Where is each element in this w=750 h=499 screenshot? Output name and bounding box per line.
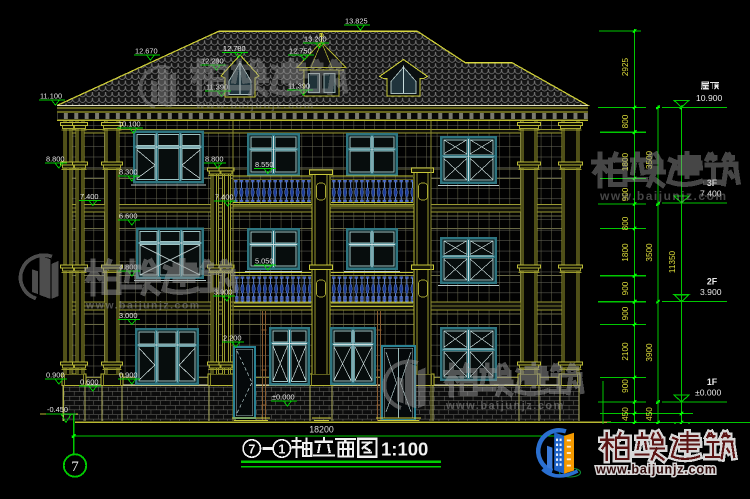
svg-text:7.400: 7.400 <box>80 192 99 201</box>
svg-text:0.600: 0.600 <box>80 378 99 387</box>
svg-text:12.780: 12.780 <box>223 44 246 53</box>
svg-text:-0.450: -0.450 <box>47 405 68 414</box>
svg-text:12.670: 12.670 <box>135 47 158 56</box>
svg-text:0.900: 0.900 <box>46 371 65 380</box>
svg-text:450: 450 <box>645 407 654 421</box>
svg-text:800: 800 <box>621 216 630 230</box>
svg-text:3.900: 3.900 <box>700 287 722 297</box>
svg-text:8.300: 8.300 <box>119 168 138 177</box>
svg-text:10.900: 10.900 <box>696 93 723 103</box>
svg-text:8.800: 8.800 <box>205 155 224 164</box>
svg-text:13.200: 13.200 <box>304 35 327 44</box>
svg-text:7: 7 <box>71 459 79 475</box>
svg-text:1800: 1800 <box>621 243 630 262</box>
svg-text:3900: 3900 <box>645 343 654 362</box>
svg-text:7: 7 <box>248 442 255 456</box>
svg-text:www.baijunjz.com: www.baijunjz.com <box>85 300 201 312</box>
svg-text:8.800: 8.800 <box>46 155 65 164</box>
svg-text:www.baijunjz.com: www.baijunjz.com <box>595 463 717 477</box>
svg-text:18200: 18200 <box>309 424 334 434</box>
svg-text:1:100: 1:100 <box>381 439 428 460</box>
svg-text:www.baijunjz.com: www.baijunjz.com <box>445 400 565 412</box>
svg-text:3.000: 3.000 <box>119 311 138 320</box>
svg-text:±0.000: ±0.000 <box>695 388 721 398</box>
svg-text:13.825: 13.825 <box>345 17 368 26</box>
svg-text:5.050: 5.050 <box>255 257 274 266</box>
svg-text:11350: 11350 <box>668 250 677 273</box>
svg-text:www.baijunjz.com: www.baijunjz.com <box>195 100 315 112</box>
svg-text:2F: 2F <box>707 277 718 287</box>
svg-text:3500: 3500 <box>645 243 654 262</box>
svg-text:8.550: 8.550 <box>255 160 274 169</box>
svg-text:450: 450 <box>621 407 630 421</box>
svg-text:11.100: 11.100 <box>40 92 62 101</box>
svg-text:900: 900 <box>621 306 630 320</box>
svg-text:±0.000: ±0.000 <box>272 393 295 402</box>
svg-text:6.600: 6.600 <box>119 212 138 221</box>
svg-text:2925: 2925 <box>621 57 630 76</box>
svg-text:7.400: 7.400 <box>215 193 234 202</box>
svg-text:1: 1 <box>278 442 285 456</box>
svg-text:2100: 2100 <box>621 342 630 361</box>
svg-text:12.750: 12.750 <box>289 47 312 56</box>
svg-text:10.100: 10.100 <box>118 120 141 129</box>
svg-text:800: 800 <box>621 114 630 128</box>
svg-text:900: 900 <box>621 379 630 393</box>
svg-text:2.200: 2.200 <box>223 334 242 343</box>
svg-text:900: 900 <box>621 281 630 295</box>
svg-text:0.900: 0.900 <box>119 371 138 380</box>
svg-text:www.baijunjz.com: www.baijunjz.com <box>599 189 728 203</box>
svg-text:1F: 1F <box>707 377 718 387</box>
